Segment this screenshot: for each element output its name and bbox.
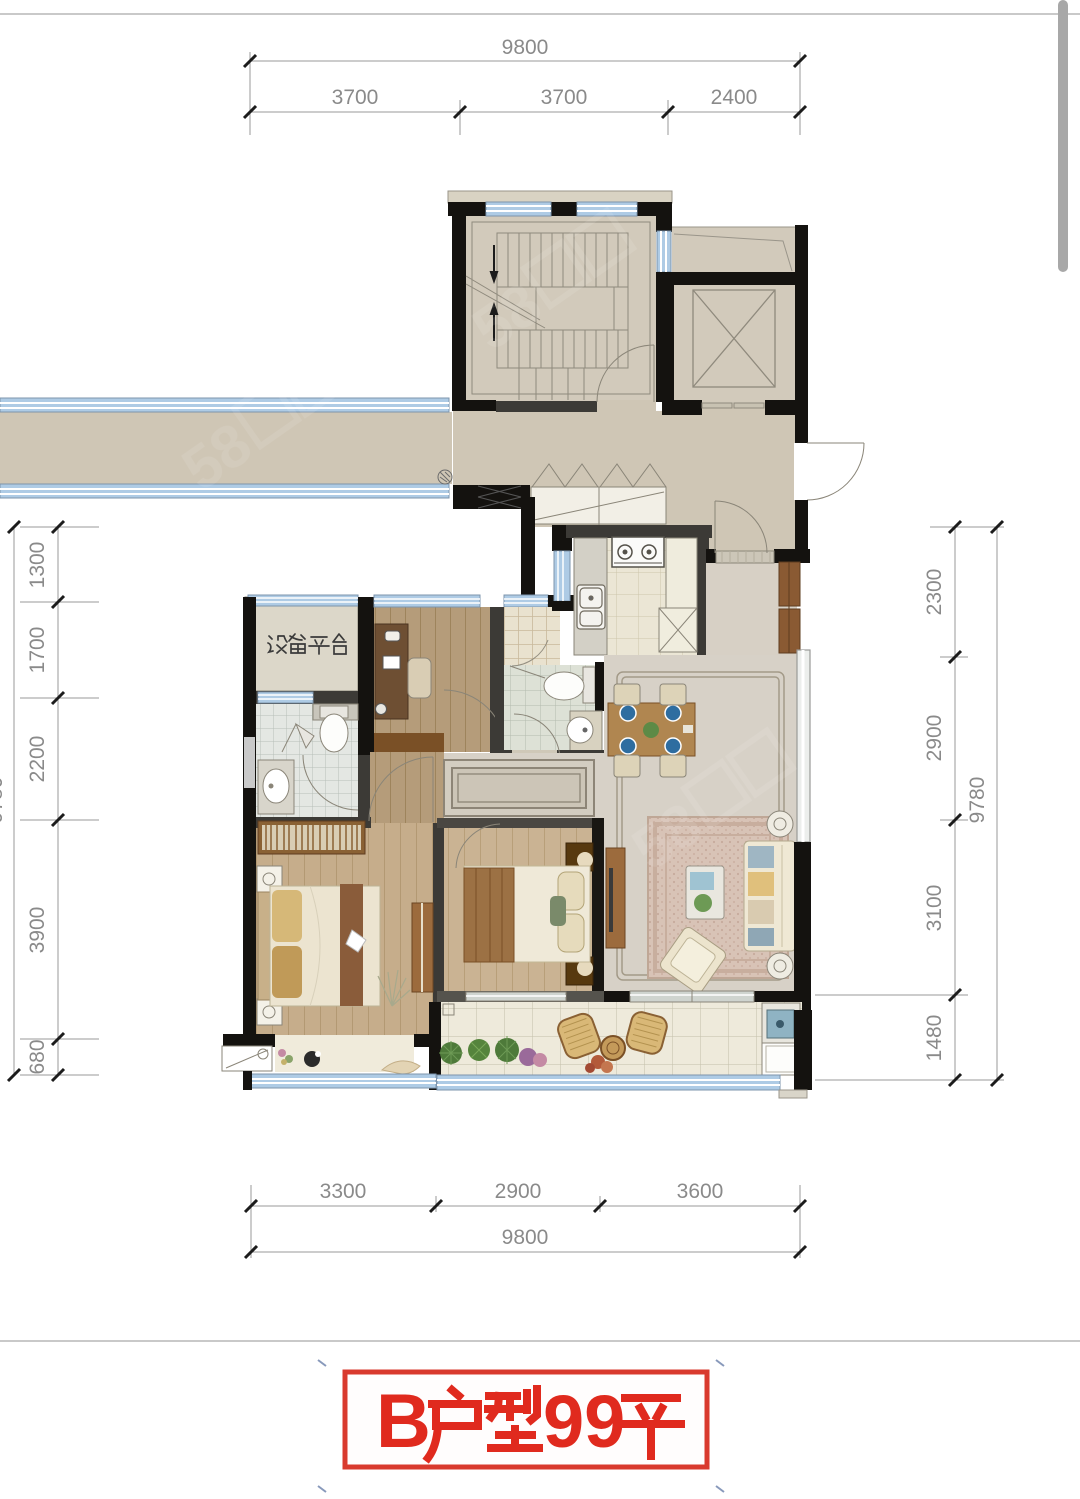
svg-text:1700: 1700 — [26, 627, 49, 674]
svg-text:2300: 2300 — [923, 569, 946, 616]
svg-text:680: 680 — [26, 1039, 49, 1074]
svg-text:9800: 9800 — [502, 1226, 549, 1249]
svg-text:2200: 2200 — [26, 736, 49, 783]
svg-text:2400: 2400 — [711, 86, 758, 109]
svg-text:3700: 3700 — [541, 86, 588, 109]
svg-text:9800: 9800 — [502, 36, 549, 59]
svg-text:B: B — [376, 1379, 431, 1464]
svg-text:3900: 3900 — [26, 907, 49, 954]
svg-text:9780: 9780 — [966, 777, 989, 824]
svg-text:9780: 9780 — [0, 777, 7, 824]
svg-text:2900: 2900 — [923, 715, 946, 762]
svg-text:3700: 3700 — [332, 86, 379, 109]
svg-text:99: 99 — [543, 1380, 625, 1463]
svg-text:1300: 1300 — [26, 542, 49, 589]
svg-text:3600: 3600 — [677, 1180, 724, 1203]
svg-text:1480: 1480 — [923, 1015, 946, 1062]
svg-text:3300: 3300 — [320, 1180, 367, 1203]
svg-text:2900: 2900 — [495, 1180, 542, 1203]
svg-text:3100: 3100 — [923, 885, 946, 932]
